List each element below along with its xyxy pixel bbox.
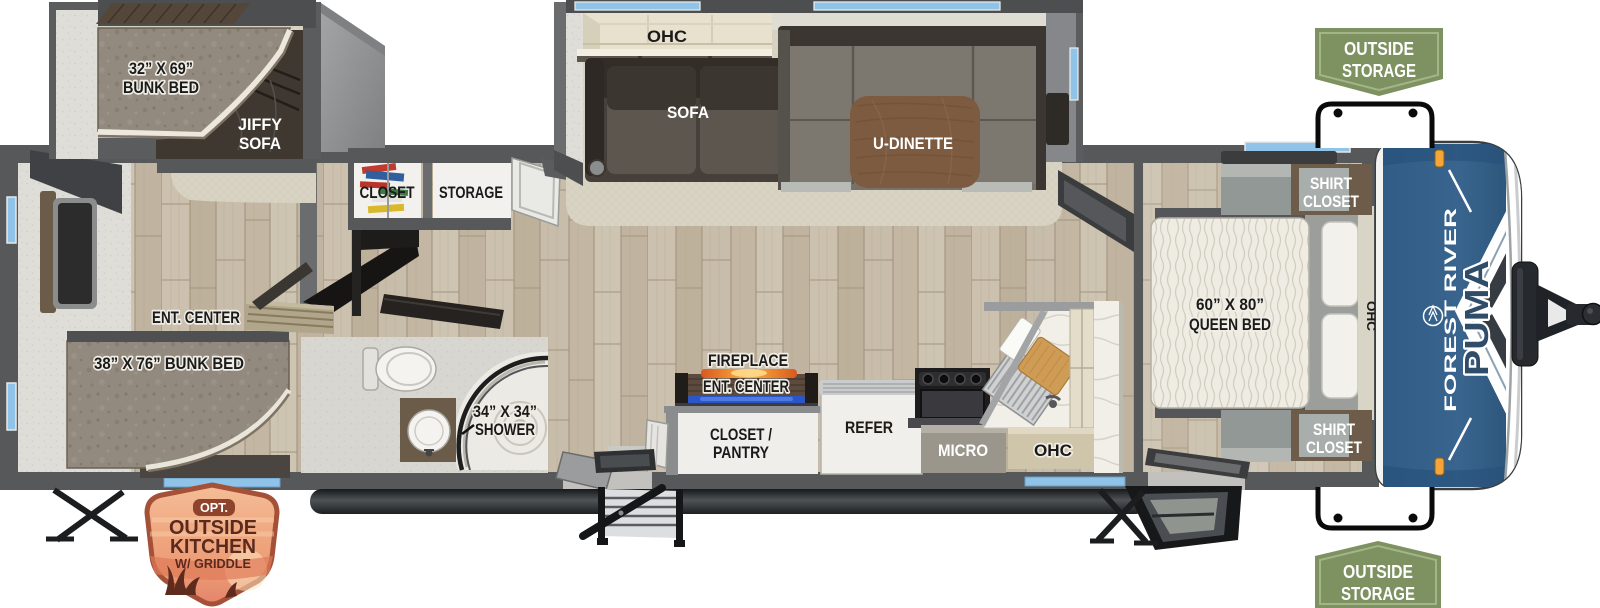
svg-text:OUTSIDE: OUTSIDE	[1343, 562, 1413, 582]
svg-text:38” X 76” BUNK BED: 38” X 76” BUNK BED	[94, 354, 244, 373]
svg-text:FIREPLACE: FIREPLACE	[708, 351, 788, 370]
svg-text:STORAGE: STORAGE	[1341, 584, 1415, 604]
svg-text:OHC: OHC	[647, 27, 687, 46]
svg-text:STORAGE: STORAGE	[1342, 61, 1416, 81]
svg-text:CLOSET: CLOSET	[1306, 438, 1362, 457]
svg-text:PANTRY: PANTRY	[713, 443, 770, 462]
svg-text:PUMA: PUMA	[1458, 260, 1495, 376]
svg-text:CLOSET /: CLOSET /	[710, 425, 772, 444]
svg-text:QUEEN BED: QUEEN BED	[1189, 315, 1271, 334]
svg-text:34” X 34”: 34” X 34”	[473, 402, 537, 421]
svg-text:32” X 69”: 32” X 69”	[129, 59, 193, 78]
svg-text:CLOSET: CLOSET	[1303, 192, 1359, 211]
svg-text:60” X 80”: 60” X 80”	[1196, 295, 1264, 314]
svg-text:KITCHEN: KITCHEN	[170, 536, 256, 558]
svg-text:ENT. CENTER: ENT. CENTER	[703, 377, 789, 396]
svg-text:SOFA: SOFA	[667, 103, 709, 122]
svg-text:OPT.: OPT.	[200, 500, 228, 515]
svg-text:BUNK BED: BUNK BED	[123, 78, 199, 97]
svg-text:SOFA: SOFA	[239, 134, 281, 153]
svg-text:W/ GRIDDLE: W/ GRIDDLE	[175, 556, 251, 571]
svg-text:OUTSIDE: OUTSIDE	[1344, 39, 1414, 59]
svg-text:SHIRT: SHIRT	[1313, 420, 1356, 439]
svg-text:SHOWER: SHOWER	[475, 420, 535, 439]
svg-text:JIFFY: JIFFY	[238, 115, 283, 134]
svg-text:STORAGE: STORAGE	[439, 183, 503, 202]
svg-text:ENT. CENTER: ENT. CENTER	[152, 308, 240, 327]
svg-text:MICRO: MICRO	[938, 441, 988, 460]
svg-text:U-DINETTE: U-DINETTE	[873, 134, 953, 153]
svg-text:SHIRT: SHIRT	[1310, 174, 1353, 193]
svg-text:REFER: REFER	[845, 418, 893, 437]
svg-text:OHC: OHC	[1034, 441, 1072, 460]
svg-text:CLOSET: CLOSET	[360, 183, 415, 202]
